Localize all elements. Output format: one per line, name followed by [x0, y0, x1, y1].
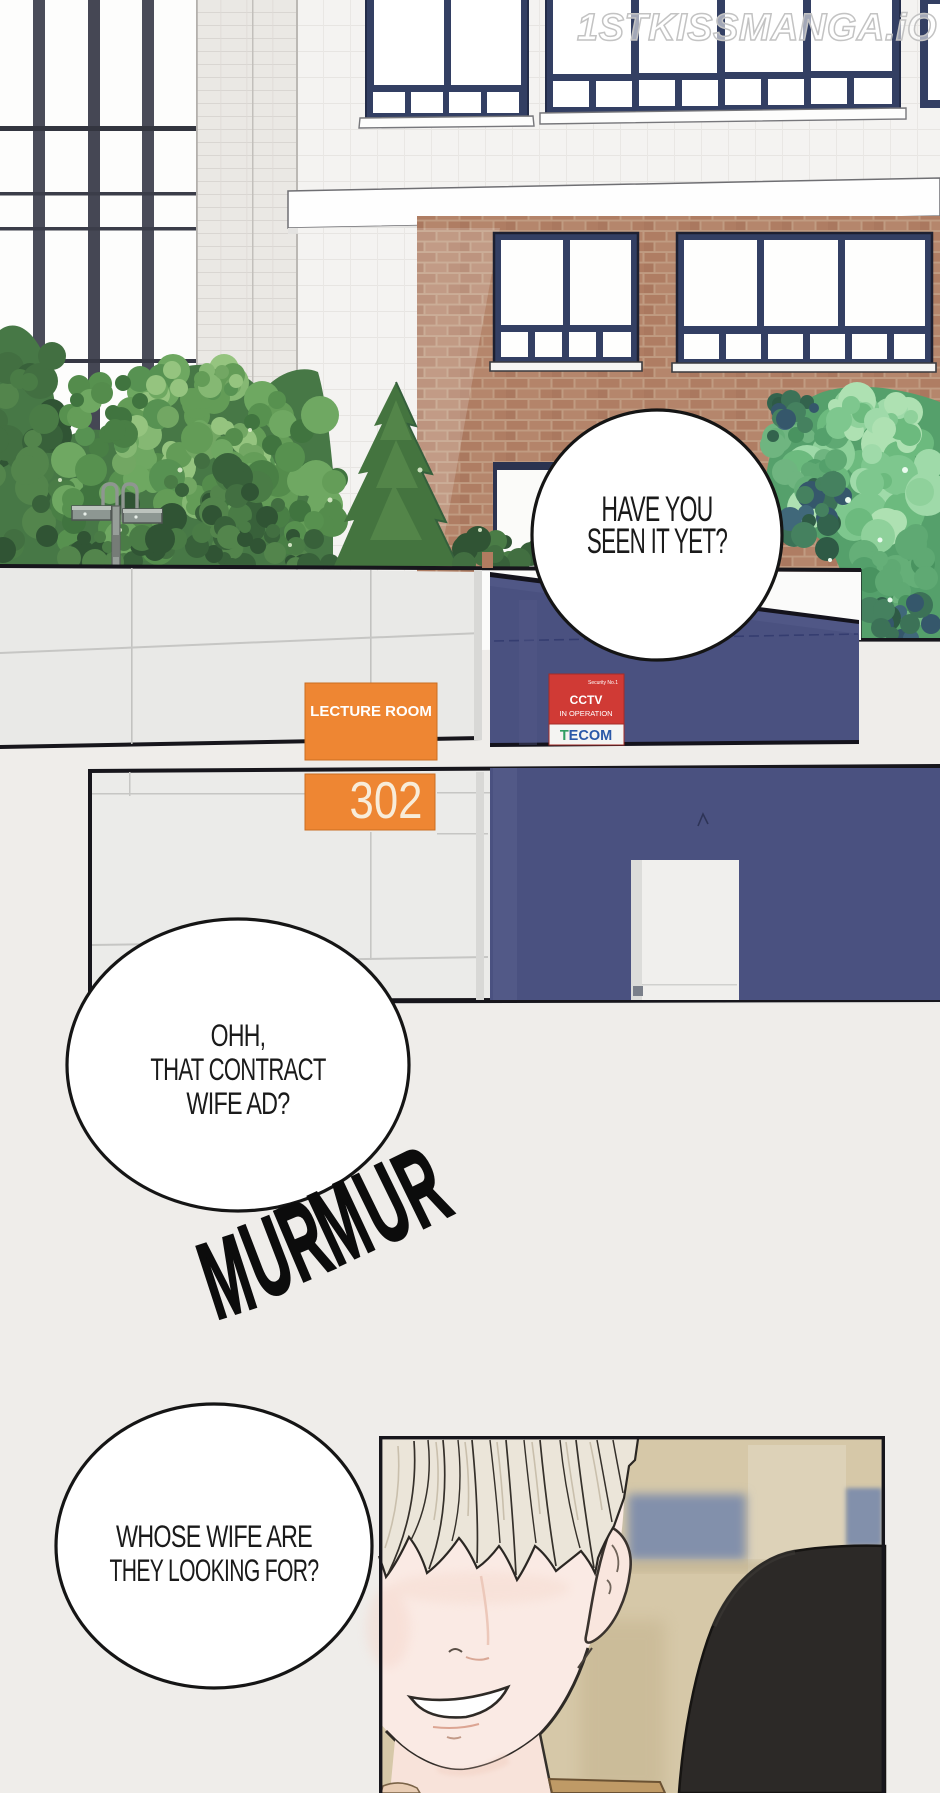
svg-text:302: 302 — [350, 773, 423, 830]
svg-text:SEEN IT YET?: SEEN IT YET? — [587, 522, 728, 561]
svg-text:IN OPERATION: IN OPERATION — [559, 709, 612, 718]
svg-text:WIFE AD?: WIFE AD? — [186, 1086, 290, 1121]
svg-text:CCTV: CCTV — [570, 693, 603, 707]
svg-text:WHOSE WIFE ARE: WHOSE WIFE ARE — [116, 1519, 312, 1554]
svg-text:OHH,: OHH, — [211, 1018, 266, 1053]
svg-text:THAT CONTRACT: THAT CONTRACT — [150, 1052, 326, 1087]
svg-text:LECTURE ROOM: LECTURE ROOM — [310, 703, 432, 720]
svg-text:THEY LOOKING FOR?: THEY LOOKING FOR? — [110, 1553, 319, 1588]
svg-text:TECOM: TECOM — [560, 728, 612, 744]
svg-text:Security No.1: Security No.1 — [588, 680, 618, 686]
svg-text:1STKISSMANGA.iO: 1STKISSMANGA.iO — [577, 7, 937, 49]
